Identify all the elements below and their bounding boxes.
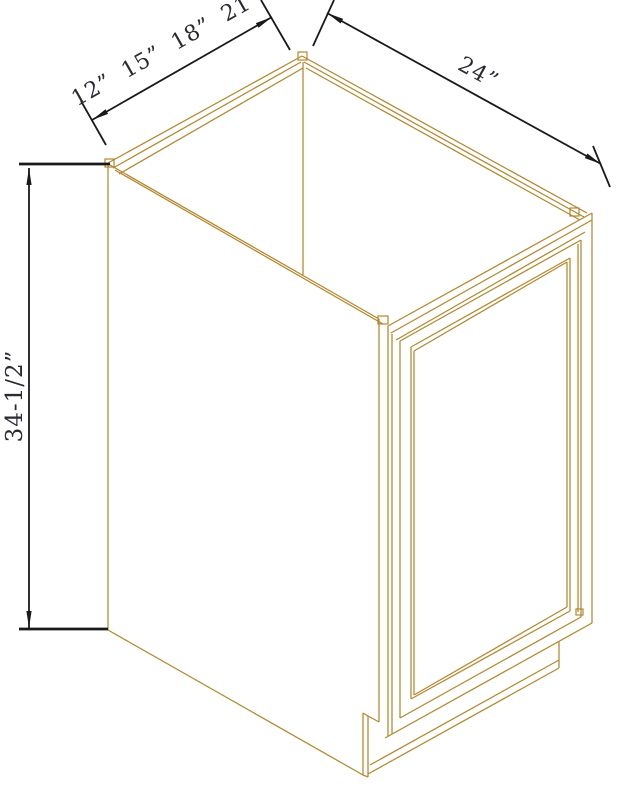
cabinet-isometric-drawing: 12” 15” 18” 21” 24” 34-1/2”	[0, 0, 623, 787]
height-arrow-top	[26, 168, 31, 185]
depth-extension-left	[313, 0, 334, 46]
width-extension-right	[261, 0, 290, 50]
door-bottom-corner-block	[576, 609, 583, 615]
width-arrow-left	[92, 109, 108, 120]
cabinet-toe-kick	[368, 642, 559, 774]
height-arrow-bottom	[26, 611, 31, 628]
cabinet-side-panel	[108, 163, 379, 777]
cabinet-top-edges	[105, 52, 587, 324]
depth-extension-right	[593, 146, 610, 187]
drawing-page: 12” 15” 18” 21” 24” 34-1/2”	[0, 0, 623, 787]
depth-arrow-left	[327, 13, 343, 24]
width-arrow-right	[256, 17, 272, 28]
door-panel-bevel	[411, 258, 570, 699]
cabinet-outline	[105, 52, 592, 777]
width-dimension-label: 12” 15” 18” 21”	[68, 0, 267, 112]
width-dimension: 12” 15” 18” 21”	[68, 0, 290, 145]
height-dimension-label: 34-1/2”	[2, 350, 28, 443]
cabinet-door	[400, 240, 583, 718]
height-dimension: 34-1/2”	[2, 164, 110, 629]
depth-dimension: 24”	[313, 0, 610, 187]
depth-dimension-label: 24”	[454, 52, 503, 94]
